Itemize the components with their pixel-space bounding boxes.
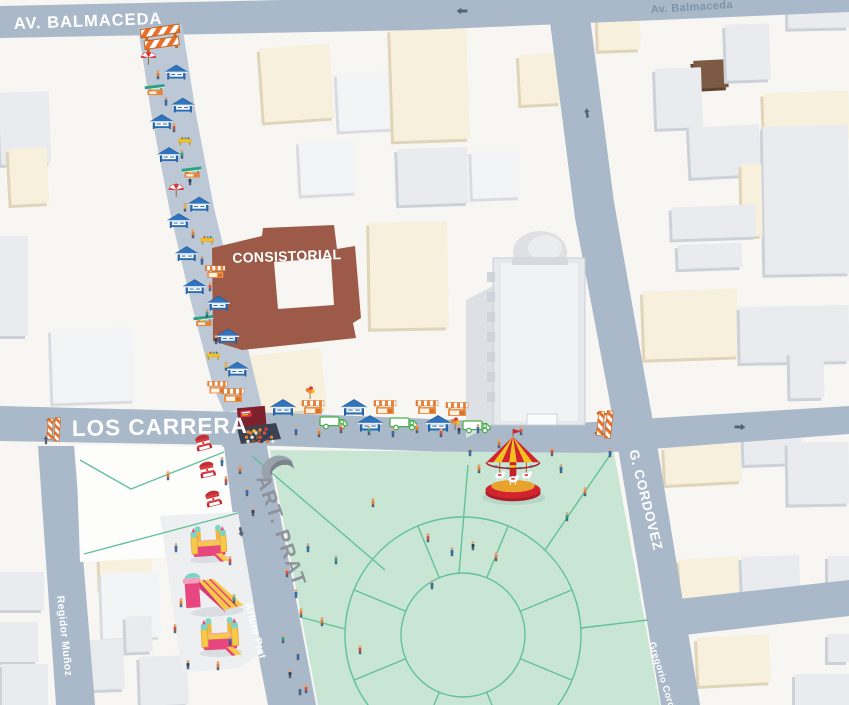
- crowd-dot: [252, 440, 255, 443]
- crowd-dot: [259, 436, 262, 439]
- crowd-dot: [250, 436, 253, 439]
- building-block: [675, 243, 743, 272]
- building-block: [668, 205, 756, 243]
- building-block: [334, 71, 395, 135]
- building-block: [722, 23, 771, 84]
- building-block: [694, 634, 772, 689]
- crowd-dot: [268, 431, 271, 434]
- building-block: [394, 147, 469, 209]
- crowd-dot: [263, 431, 266, 434]
- crowd-dot: [264, 436, 267, 439]
- stallo-icon: [446, 403, 468, 417]
- building-block: [760, 125, 849, 278]
- building-block: [296, 139, 358, 199]
- crowd-dot: [270, 436, 273, 439]
- building-block: [6, 147, 50, 208]
- building-block: [652, 67, 703, 132]
- crowd-dot: [260, 440, 263, 443]
- building-block: [640, 288, 739, 362]
- crowd-dot: [271, 440, 274, 443]
- plaza-de-armas: [270, 450, 660, 705]
- crowd-dot: [266, 440, 269, 443]
- stallo-icon: [205, 266, 225, 278]
- building-block: [792, 674, 849, 705]
- festival-event-map: AV. BALMACEDA Av. Balmaceda LOS CARRERA …: [0, 0, 849, 705]
- building-block: [122, 616, 152, 656]
- street-label-los-carrera: LOS CARRERA: [72, 413, 248, 441]
- crowd-dot: [246, 440, 249, 443]
- crowd-dot: [249, 431, 252, 434]
- stallo-icon: [222, 389, 244, 403]
- building-block: [257, 44, 335, 126]
- building-block: [516, 53, 562, 108]
- building-block: [468, 149, 521, 202]
- building-block: [825, 634, 849, 665]
- map-canvas: AV. BALMACEDA Av. Balmaceda LOS CARRERA …: [0, 0, 849, 705]
- crowd-dot: [257, 431, 260, 434]
- building-block: [387, 27, 470, 145]
- building-block: [366, 221, 449, 331]
- stallo-icon: [302, 401, 324, 415]
- building-block: [784, 441, 849, 507]
- building-block: [0, 572, 44, 613]
- stallo-icon: [374, 401, 396, 415]
- building-block: [0, 664, 48, 705]
- building-block: [787, 352, 825, 402]
- road-barrier-icon: [45, 417, 61, 441]
- building-block: [48, 327, 136, 407]
- stallo-icon: [416, 401, 438, 415]
- building-block: [0, 622, 38, 665]
- building-block: [0, 236, 28, 339]
- building-block: [661, 443, 742, 488]
